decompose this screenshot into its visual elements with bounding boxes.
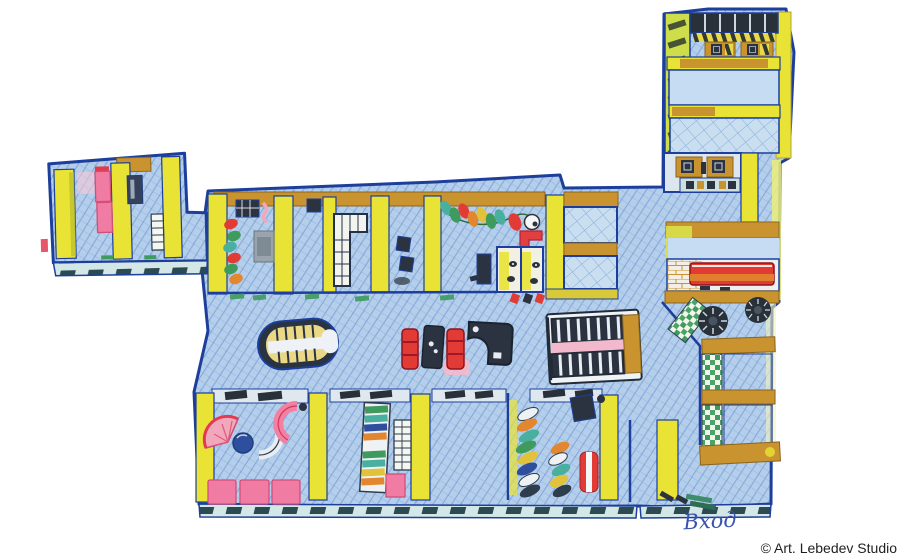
pink-table-2 [240,480,269,504]
wing-wall-band-2-tan [672,107,715,116]
top-wall-d [371,196,389,292]
oval-reception-desk [256,317,340,372]
east-wall-lower [766,300,776,460]
bottom-row-window-strips [212,389,602,403]
entrance-label: Вход [682,508,737,535]
wing-plain-room [668,238,779,259]
doormat-1 [101,255,113,259]
navy-cabinet [127,175,143,203]
dark-desk [570,394,596,421]
white-round-chair [525,215,540,230]
spiral-stair-2 [745,297,771,323]
white-grid-shelf [151,214,164,250]
bottom-wall-g [657,420,678,500]
stair-checker-b [702,354,722,392]
navy-cabinet-highlight [130,180,134,199]
wing-wall-vertical [741,153,758,222]
wing-empty-room [669,70,779,105]
pink-table-1 [208,480,236,504]
top-row-south-wall [208,292,497,293]
sofa-group [402,325,470,375]
red-sofa-left [402,329,418,369]
floorplan-illustration: Вход © Art. Lebedev Studio [0,0,900,558]
pink-table-4 [386,474,405,497]
navy-round-chair [233,433,253,453]
pink-table-3 [272,480,300,504]
left-wing-divider-wall-2 [162,156,183,257]
pink-desk-1 [95,171,111,201]
corridor-shelf-2 [702,390,775,404]
red-sofa-lounge [667,259,779,291]
credit-text: © Art. Lebedev Studio [761,540,898,556]
floorplan-svg: Вход © Art. Lebedev Studio [0,0,900,558]
stair-checker-c [702,405,722,448]
pink-wash [77,172,95,194]
left-wing [39,153,208,278]
red-white-locker [580,452,598,492]
corridor-shelf-1 [702,337,775,355]
charcoal-cabinet [477,254,491,284]
wing-wall-band-1-tan [680,59,768,68]
spiral-stair-1 [698,306,728,336]
bottom-wall-d-yellow [509,400,517,495]
red-sofa-right [447,329,464,369]
grid-floor-room [670,118,779,153]
red-mark-outer [41,239,48,252]
computer-room [664,153,741,192]
dark-sideboard [307,199,321,212]
top-wall-f [546,195,564,293]
tall-grid-shelf [394,420,411,470]
bottom-wall-b [309,393,327,500]
top-wall-b [274,196,293,294]
bottom-wall-c [411,394,430,500]
bottom-wall-e [600,395,618,500]
doormat-2 [144,255,156,259]
pink-desk-2 [97,202,113,232]
top-wall-a [208,194,227,294]
south-facade-glass [199,504,637,518]
charcoal-table [422,325,445,368]
top-wall-e [424,196,441,292]
bookshelf [546,310,642,385]
